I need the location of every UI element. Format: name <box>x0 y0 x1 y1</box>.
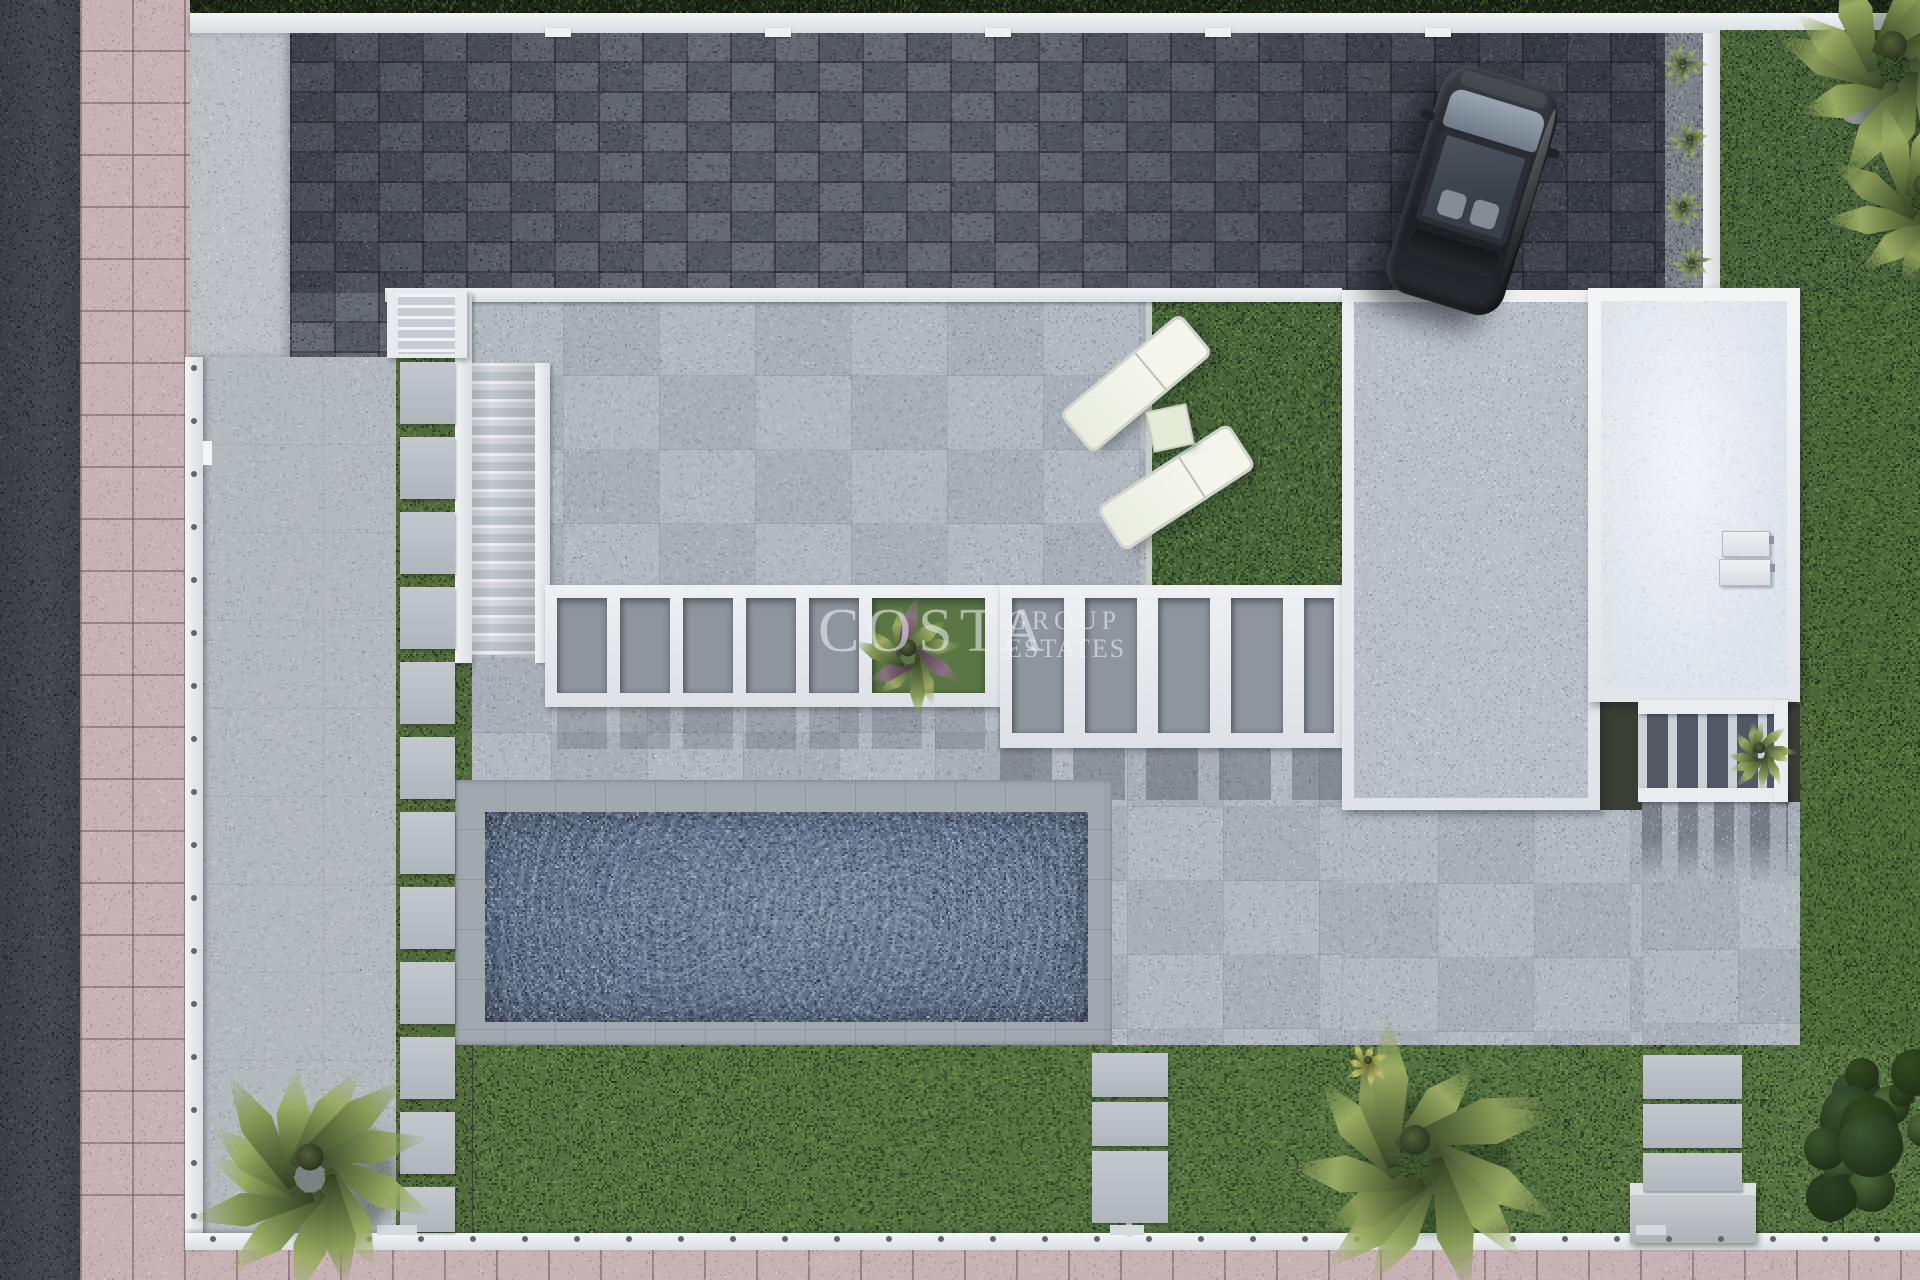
stepping-slab <box>400 812 455 874</box>
stepping-slab <box>400 1112 455 1174</box>
entry-steps-treads <box>398 294 455 354</box>
stepping-slab <box>400 437 455 499</box>
asphalt-road <box>0 0 80 1280</box>
fence-post <box>1198 1236 1204 1242</box>
texture-noise <box>1665 33 1703 293</box>
swimming-pool <box>455 780 1112 1045</box>
fence-post <box>730 1236 736 1242</box>
fence-post <box>191 577 197 583</box>
lawn-stepping-slab <box>1643 1104 1742 1148</box>
car-seat <box>1468 198 1500 230</box>
pergola-beam-bottom <box>1638 788 1788 802</box>
ac-pipe <box>1770 564 1775 572</box>
fence-post <box>191 789 197 795</box>
texture-noise <box>1797 292 1920 704</box>
car-seat <box>1436 188 1468 220</box>
lounger-seam <box>1135 352 1167 389</box>
paver-driveway-notch <box>290 293 387 357</box>
fence-post <box>191 1160 197 1166</box>
wall-tab <box>1636 1225 1666 1235</box>
lawn-northeast <box>1720 30 1920 292</box>
wall-light <box>1205 28 1231 37</box>
stepping-slab <box>400 1037 455 1099</box>
stepping-slab <box>400 362 455 424</box>
wall-light <box>545 28 571 37</box>
fence-post <box>470 1236 476 1242</box>
fence-post <box>191 842 197 848</box>
fence-post <box>191 630 197 636</box>
fence-post <box>1042 1236 1048 1242</box>
fence-post <box>522 1236 528 1242</box>
fence-post <box>191 1054 197 1060</box>
texture-noise <box>467 302 1146 585</box>
upper-terrace <box>467 302 1146 585</box>
fence-post <box>1302 1236 1308 1242</box>
lawn-stepping-slab <box>1092 1053 1168 1097</box>
fence-post <box>210 1236 216 1242</box>
stepping-slab <box>400 737 455 799</box>
villa-roof-annex-surface <box>1601 301 1787 689</box>
lawn-stepping-slab <box>1092 1151 1168 1223</box>
fence-post <box>191 895 197 901</box>
fence-post <box>191 1213 197 1219</box>
entrance-concrete-strip <box>190 33 290 357</box>
boundary-wall-top <box>190 13 1920 33</box>
fence-post <box>314 1236 320 1242</box>
texture-noise <box>190 33 290 357</box>
texture-noise <box>290 293 387 357</box>
texture-noise <box>80 0 190 1280</box>
pergola-drop-shadow-west <box>557 707 1000 749</box>
fence-post <box>938 1236 944 1242</box>
fence-post <box>886 1236 892 1242</box>
pergola-beam-vertical <box>1774 700 1788 802</box>
fence-post <box>990 1236 996 1242</box>
pergola-opening <box>809 598 859 693</box>
fence-post <box>191 683 197 689</box>
fence-post <box>1510 1236 1516 1242</box>
fence-post <box>262 1236 268 1242</box>
side-table <box>1147 405 1192 450</box>
wall-light <box>765 28 791 37</box>
pergola-shadow-stripes <box>1642 802 1788 882</box>
fence-post <box>1094 1236 1100 1242</box>
fence-post <box>1770 1236 1776 1242</box>
lawn-stepping-slab <box>1643 1153 1742 1191</box>
fence-post <box>191 948 197 954</box>
pergola-opening <box>746 598 796 693</box>
texture-noise <box>1342 810 1642 1045</box>
texture-noise <box>203 357 396 1233</box>
aerial-render-stage: COSTA GROUP ESTATES <box>0 0 1920 1280</box>
entry-steps <box>387 290 467 358</box>
stepping-slab <box>400 587 455 649</box>
villa-roof-main <box>1342 290 1600 810</box>
planting-strip-wall <box>1703 33 1720 293</box>
pergola-opening <box>557 598 607 693</box>
texture-noise <box>190 0 1920 13</box>
pergola-opening <box>1231 598 1283 733</box>
boundary-hedge <box>190 0 1920 13</box>
pergola-opening <box>620 598 670 693</box>
fence-post <box>1146 1236 1152 1242</box>
pergola-opening <box>683 598 733 693</box>
fence-post <box>678 1236 684 1242</box>
lawn-east-lower <box>1800 704 1920 1047</box>
fence-post <box>418 1236 424 1242</box>
pergola-planter-opening <box>872 598 985 693</box>
villa-roof-annex <box>1588 288 1800 702</box>
fence-post <box>1250 1236 1256 1242</box>
gate-handle <box>203 441 212 465</box>
car-sunroof-glass <box>1422 135 1525 239</box>
pergola-opening <box>1085 598 1137 733</box>
sidewalk-tiles-left <box>80 0 190 1280</box>
terrace-staircase <box>472 363 535 655</box>
lounger-seam <box>1178 457 1205 498</box>
fence-post <box>1406 1236 1412 1242</box>
pergola-opening <box>1158 598 1210 733</box>
boundary-wall-west <box>185 357 203 1250</box>
texture-noise <box>0 0 80 1280</box>
texture-noise <box>1601 301 1787 689</box>
pergola-opening <box>1012 598 1064 733</box>
terrace-pergola-shadow <box>1642 802 1800 1045</box>
texture-noise <box>1720 30 1920 292</box>
wall-light <box>1425 28 1451 37</box>
fence-post <box>191 736 197 742</box>
ac-pipe <box>1769 536 1774 544</box>
terrace-top-border <box>385 288 1342 302</box>
fence-post <box>366 1236 372 1242</box>
ac-unit-2 <box>1719 559 1771 586</box>
pergola-beam-top <box>1638 700 1788 714</box>
lawn-east <box>1797 292 1920 704</box>
fence-post <box>191 1001 197 1007</box>
fence-post <box>191 365 197 371</box>
west-patio <box>203 357 396 1233</box>
ac-unit-1 <box>1722 531 1770 557</box>
pool-water <box>485 812 1088 1022</box>
sidewalk-tiles-bottom <box>80 1246 1920 1280</box>
lawn-stepping-slab <box>1092 1102 1168 1146</box>
fence-post <box>1718 1236 1724 1242</box>
stepping-slab <box>400 962 455 1024</box>
fence-post <box>574 1236 580 1242</box>
texture-noise <box>1354 302 1588 798</box>
fence-post <box>191 1107 197 1113</box>
texture-noise <box>1800 704 1920 1047</box>
wall-tab <box>377 1225 417 1235</box>
pergola-slats <box>1638 714 1774 788</box>
pergola-opening <box>1304 598 1334 733</box>
fence-post <box>1562 1236 1568 1242</box>
wall-light <box>985 28 1011 37</box>
fence-post <box>626 1236 632 1242</box>
fence-post <box>1822 1236 1828 1242</box>
fence-post <box>191 418 197 424</box>
stepping-slab <box>400 887 455 949</box>
stepping-slab <box>400 662 455 724</box>
fence-post <box>834 1236 840 1242</box>
fence-post <box>1874 1236 1880 1242</box>
fence-post <box>1458 1236 1464 1242</box>
lawn-stepping-slab <box>1643 1055 1742 1099</box>
fence-post <box>1666 1236 1672 1242</box>
gravel-planting-strip <box>1665 33 1703 293</box>
terrace-under-roof <box>1342 810 1642 1045</box>
fence-post <box>191 471 197 477</box>
fence-post <box>191 524 197 530</box>
fence-post <box>1614 1236 1620 1242</box>
texture-noise <box>485 812 1088 1022</box>
fence-post <box>782 1236 788 1242</box>
texture-noise <box>80 1246 1920 1280</box>
stepping-slab <box>400 512 455 574</box>
villa-roof-main-surface <box>1354 302 1588 798</box>
wall-tab <box>1110 1225 1144 1235</box>
fence-post <box>1354 1236 1360 1242</box>
